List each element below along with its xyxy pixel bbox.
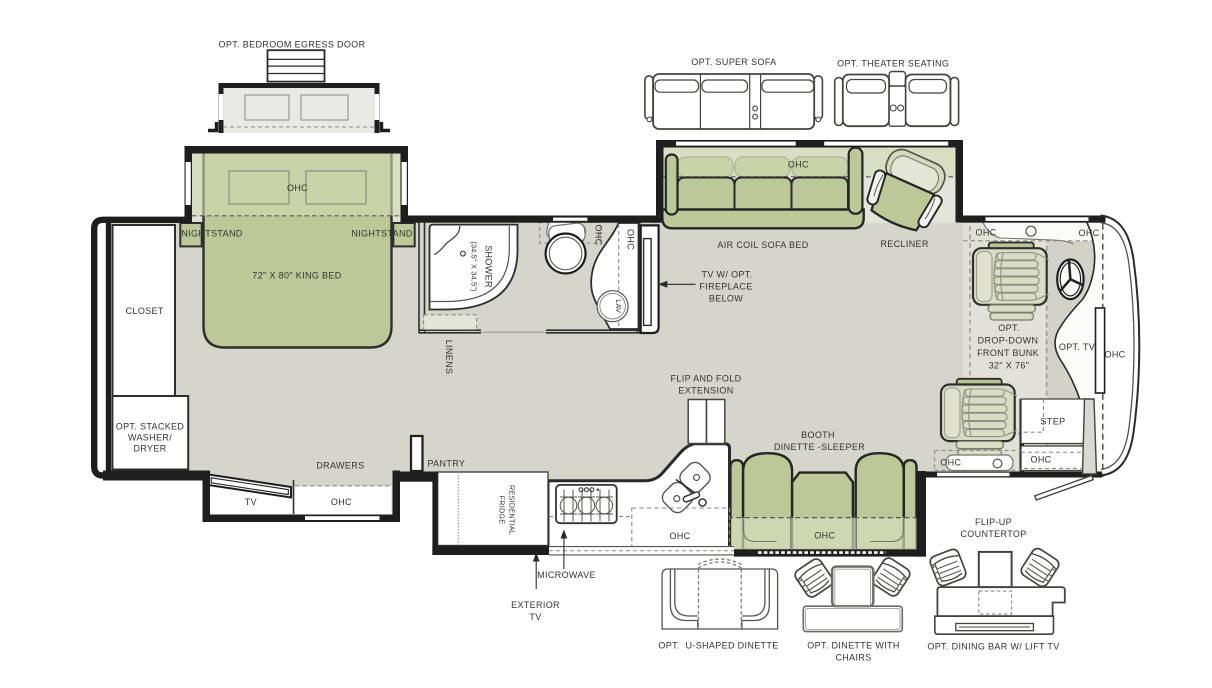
svg-text:OHC: OHC (788, 159, 809, 169)
svg-text:BOOTH: BOOTH (801, 430, 835, 440)
svg-text:OPT. THEATER SEATING: OPT. THEATER SEATING (837, 58, 949, 68)
svg-text:OPT. DINETTE WITH: OPT. DINETTE WITH (807, 641, 899, 651)
svg-text:DRAWERS: DRAWERS (316, 461, 364, 471)
svg-text:OHC: OHC (287, 183, 308, 193)
svg-text:OHC: OHC (1078, 228, 1099, 238)
svg-text:WASHER/: WASHER/ (128, 432, 172, 442)
svg-text:FLIP AND FOLD: FLIP AND FOLD (671, 374, 742, 384)
svg-text:FLIP-UP: FLIP-UP (975, 517, 1012, 527)
svg-text:CLOSET: CLOSET (126, 306, 164, 316)
svg-text:OHC: OHC (1104, 349, 1125, 359)
svg-text:OPT. DINING BAR W/ LIFT TV: OPT. DINING BAR W/ LIFT TV (927, 641, 1059, 651)
svg-text:COUNTERTOP: COUNTERTOP (960, 529, 1026, 539)
svg-text:NIGHTSTAND: NIGHTSTAND (181, 229, 242, 239)
svg-text:FIREPLACE: FIREPLACE (699, 282, 752, 292)
svg-text:RESIDENTIAL: RESIDENTIAL (508, 485, 517, 535)
svg-text:OPT. U-SHAPED DINETTE: OPT. U-SHAPED DINETTE (658, 641, 778, 651)
svg-text:LAV: LAV (614, 299, 623, 313)
svg-text:FRONT BUNK: FRONT BUNK (977, 348, 1039, 358)
svg-text:FRIDGE: FRIDGE (498, 496, 507, 525)
svg-text:EXTERIOR: EXTERIOR (511, 600, 560, 610)
svg-text:DRYER: DRYER (133, 444, 166, 454)
svg-text:OHC: OHC (669, 531, 690, 541)
svg-text:OHC: OHC (814, 531, 835, 541)
svg-text:OPT. STACKED: OPT. STACKED (116, 421, 185, 431)
svg-text:OHC: OHC (626, 229, 636, 250)
svg-text:TV: TV (245, 497, 257, 507)
svg-text:EXTENSION: EXTENSION (678, 386, 733, 396)
svg-text:RECLINER: RECLINER (880, 239, 928, 249)
svg-text:OPT. SUPER SOFA: OPT. SUPER SOFA (691, 57, 776, 67)
svg-text:DINETTE -SLEEPER: DINETTE -SLEEPER (774, 442, 865, 452)
svg-text:DROP-DOWN: DROP-DOWN (978, 336, 1039, 346)
svg-text:OPT.: OPT. (998, 323, 1019, 333)
svg-text:SHOWER: SHOWER (484, 245, 494, 288)
svg-text:OHC: OHC (975, 228, 996, 238)
svg-text:OHC: OHC (940, 458, 961, 468)
svg-text:LINENS: LINENS (444, 340, 454, 375)
svg-text:CHAIRS: CHAIRS (835, 653, 871, 663)
svg-text:MICROWAVE: MICROWAVE (537, 570, 596, 580)
svg-text:BELOW: BELOW (709, 294, 743, 304)
svg-text:72" X 80" KING BED: 72" X 80" KING BED (252, 271, 341, 281)
svg-text:AIR COIL SOFA BED: AIR COIL SOFA BED (717, 240, 808, 250)
svg-text:OHC: OHC (331, 497, 352, 507)
svg-text:OHC: OHC (594, 224, 604, 245)
svg-text:STEP: STEP (1041, 417, 1066, 427)
svg-text:PANTRY: PANTRY (428, 459, 466, 469)
svg-text:TV: TV (529, 612, 541, 622)
svg-text:OPT. BEDROOM EGRESS DOOR: OPT. BEDROOM EGRESS DOOR (219, 40, 366, 50)
svg-text:OHC: OHC (1030, 455, 1051, 465)
svg-text:NIGHTSTAND: NIGHTSTAND (351, 229, 412, 239)
svg-text:32" X 76": 32" X 76" (989, 361, 1030, 371)
svg-text:TV W/ OPT.: TV W/ OPT. (701, 270, 752, 280)
svg-text:(34.5" X 34.5"): (34.5" X 34.5") (470, 241, 479, 291)
svg-text:OPT. TV: OPT. TV (1059, 342, 1095, 352)
